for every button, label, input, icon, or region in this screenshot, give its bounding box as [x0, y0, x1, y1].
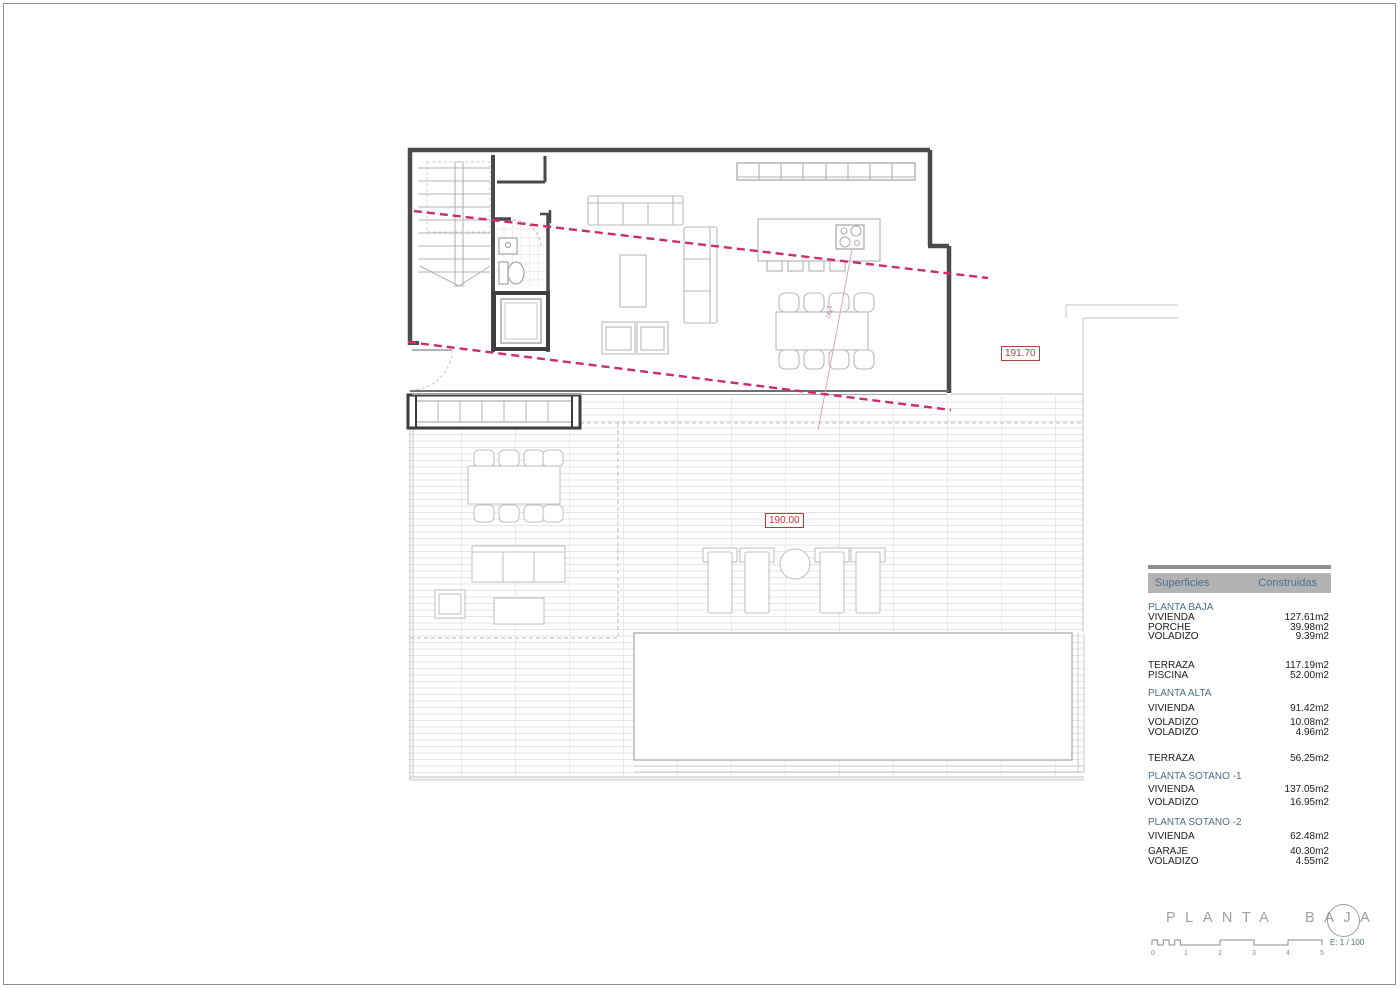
table-header: Superficies Construidas	[1148, 573, 1331, 593]
scale-ratio-label: E: 1 / 100	[1330, 938, 1364, 947]
table-row: VIVIENDA137.05m2	[1148, 785, 1331, 795]
table-row: VOLADIZO9.39m2	[1148, 632, 1331, 642]
elevation-marker-terrace: 190.00	[765, 513, 804, 528]
table-section-row: PLANTA ALTA	[1148, 689, 1331, 699]
scale-tick: 0	[1149, 950, 1157, 957]
table-row: TERRAZA56.25m2	[1148, 754, 1331, 764]
outdoor-dining-set	[468, 450, 563, 522]
outdoor-sofa	[435, 546, 565, 624]
living-room-furniture	[588, 196, 717, 354]
elevation-marker-upper-terrace: 191.70	[1001, 346, 1040, 361]
sun-loungers	[703, 548, 885, 613]
kitchen	[737, 163, 915, 271]
table-section-row: PLANTA SOTANO -2	[1148, 818, 1331, 828]
scale-tick: 3	[1250, 950, 1258, 957]
staircase	[418, 162, 490, 286]
table-rows: PLANTA BAJA VIVIENDA127.61m2 PORCHE39.98…	[1148, 603, 1331, 866]
graphic-scale-bar: 0 1 2 3 4 5 E: 1 / 100	[1150, 933, 1400, 963]
elevator-shaft	[494, 293, 548, 349]
entry-door	[412, 350, 452, 390]
table-row: VIVIENDA91.42m2	[1148, 704, 1331, 714]
scale-tick: 1	[1182, 950, 1190, 957]
table-header-col2: Construidas	[1258, 577, 1317, 589]
table-row: VOLADIZO16.95m2	[1148, 798, 1331, 808]
table-top-strip	[1148, 565, 1331, 569]
table-header-col1: Superficies	[1155, 577, 1209, 589]
scale-tick: 4	[1284, 950, 1292, 957]
table-row: PISCINA52.00m2	[1148, 671, 1331, 681]
table-row: VOLADIZO4.55m2	[1148, 857, 1331, 867]
table-section-row: PLANTA SOTANO -1	[1148, 772, 1331, 782]
drawing-sheet: 191.70 190.00 1.90 Superficies Construid…	[0, 0, 1400, 989]
porch-planter	[408, 395, 580, 428]
areas-table: Superficies Construidas PLANTA BAJA VIVI…	[1148, 565, 1331, 866]
bathroom	[499, 220, 541, 284]
pool	[634, 633, 1084, 772]
scale-tick: 2	[1216, 950, 1224, 957]
table-row: VOLADIZO4.96m2	[1148, 728, 1331, 738]
scale-tick: 5	[1318, 950, 1326, 957]
table-row: VIVIENDA62.48m2	[1148, 832, 1331, 842]
